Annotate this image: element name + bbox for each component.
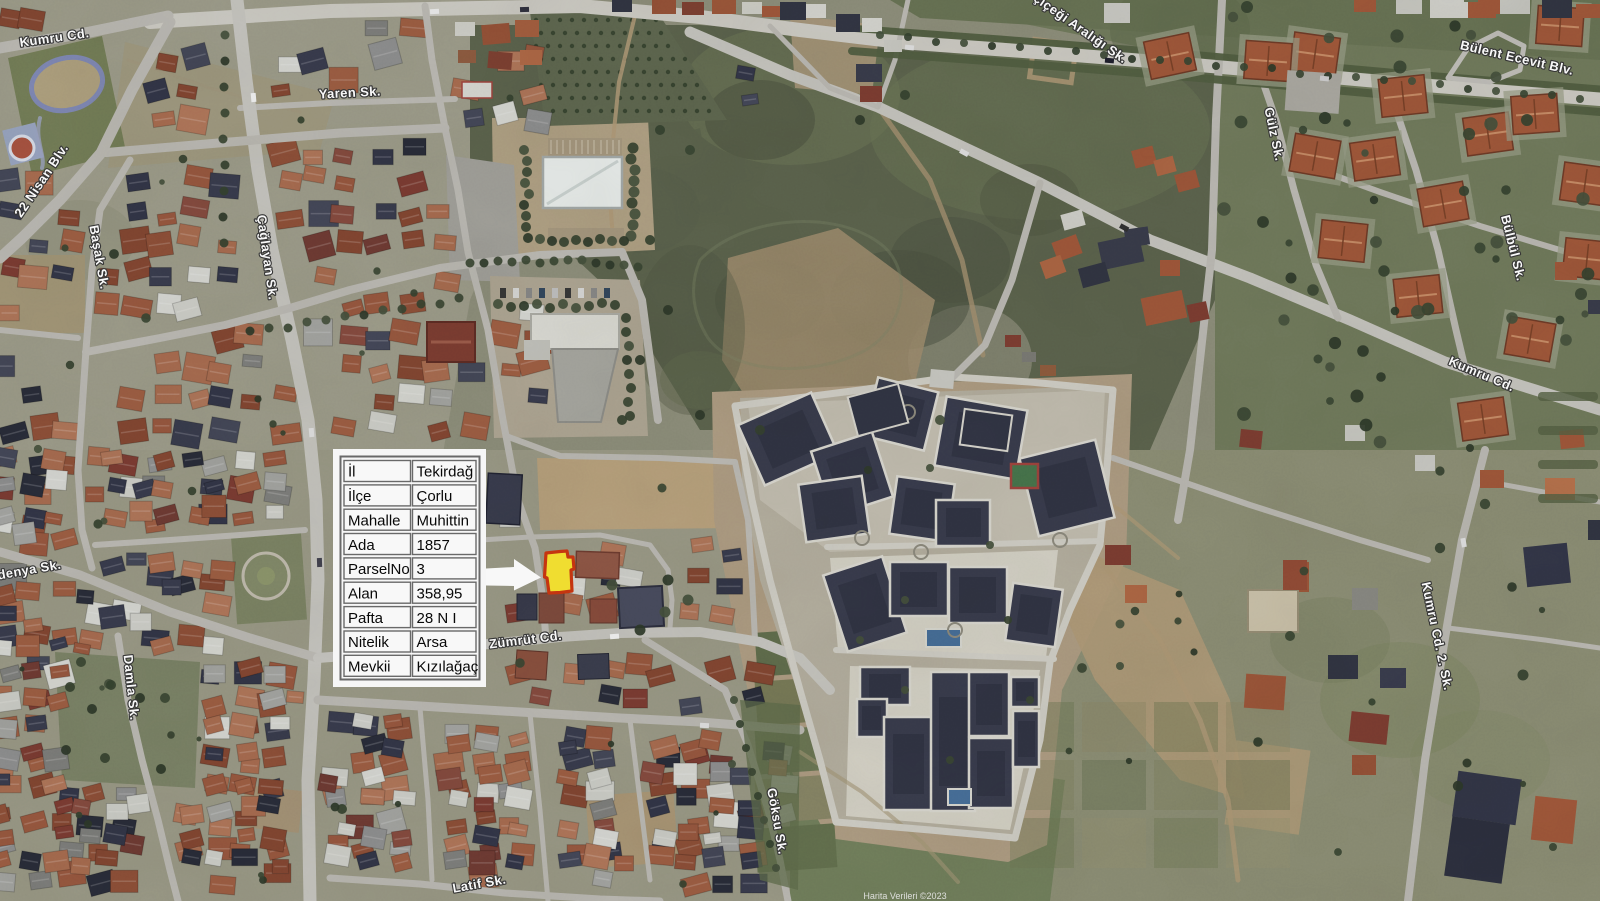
svg-text:Mevkii: Mevkii (348, 659, 391, 676)
svg-text:Harita Verileri ©2023: Harita Verileri ©2023 (863, 891, 946, 901)
svg-text:ParselNo: ParselNo (348, 561, 410, 578)
svg-text:Tekirdağ: Tekirdağ (417, 464, 474, 481)
svg-text:Mahalle: Mahalle (348, 512, 401, 529)
svg-text:Muhittin: Muhittin (417, 512, 470, 529)
svg-text:358,95: 358,95 (417, 586, 463, 603)
svg-text:Pafta: Pafta (348, 610, 384, 627)
svg-text:Kızılağaç: Kızılağaç (417, 659, 479, 676)
svg-text:1857: 1857 (417, 537, 450, 554)
svg-text:İl: İl (348, 463, 356, 481)
svg-text:Arsa: Arsa (417, 634, 449, 651)
svg-text:Ada: Ada (348, 537, 375, 554)
svg-text:Nitelik: Nitelik (348, 634, 389, 651)
svg-text:28 N I: 28 N I (417, 610, 457, 627)
svg-text:İlçe: İlçe (348, 487, 371, 505)
svg-text:Çorlu: Çorlu (417, 488, 453, 505)
svg-text:Alan: Alan (348, 586, 378, 603)
svg-text:3: 3 (417, 561, 425, 578)
